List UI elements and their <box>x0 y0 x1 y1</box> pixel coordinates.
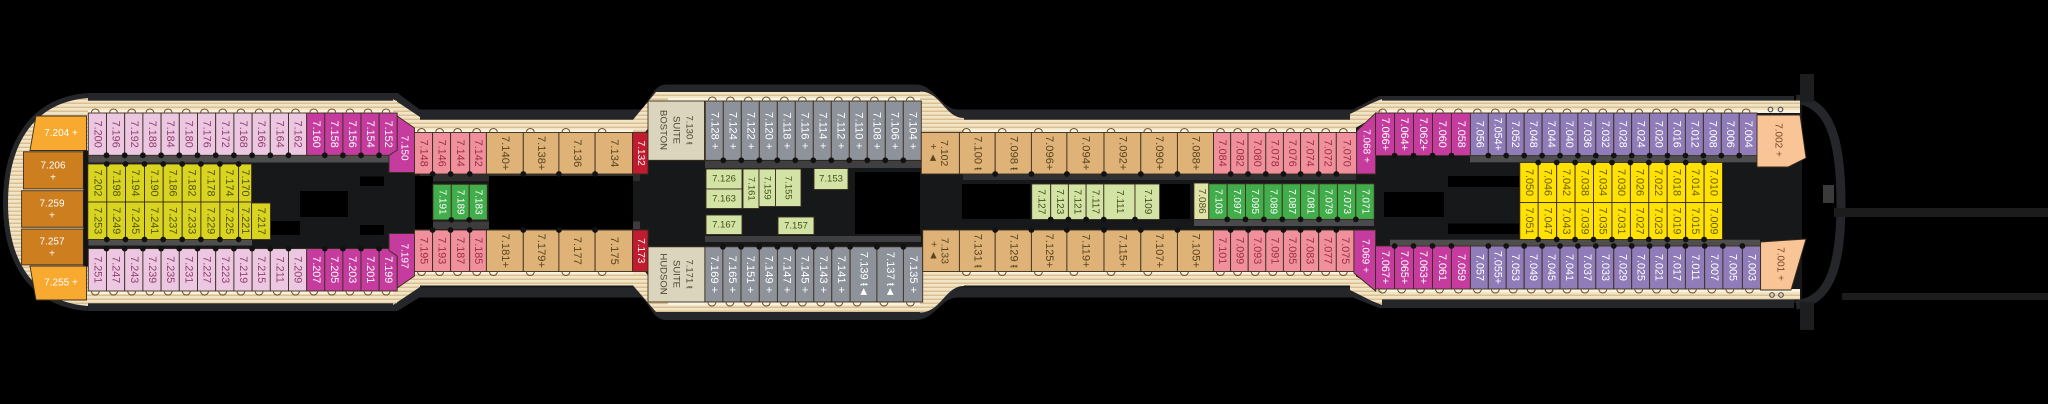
svg-text:7.008: 7.008 <box>1706 121 1718 148</box>
svg-text:7.247: 7.247 <box>110 256 122 283</box>
svg-text:7.028: 7.028 <box>1617 121 1629 148</box>
svg-text:7.026: 7.026 <box>1634 169 1646 196</box>
svg-text:7.190: 7.190 <box>148 169 160 196</box>
svg-text:7.249: 7.249 <box>110 207 122 234</box>
svg-text:7.012: 7.012 <box>1688 121 1700 148</box>
svg-text:7.223: 7.223 <box>219 256 231 283</box>
svg-text:+: + <box>49 211 55 222</box>
svg-text:7.139 ŧ◄: 7.139 ŧ◄ <box>858 252 870 297</box>
svg-text:7.020: 7.020 <box>1653 121 1665 148</box>
svg-text:+: + <box>50 173 56 184</box>
svg-text:7.121: 7.121 <box>1072 189 1083 214</box>
svg-text:7.185: 7.185 <box>472 237 484 264</box>
svg-text:7.158: 7.158 <box>328 121 340 148</box>
svg-text:7.155: 7.155 <box>783 176 794 200</box>
svg-text:7.023: 7.023 <box>1652 207 1664 234</box>
svg-text:+ ◄: + ◄ <box>928 241 940 260</box>
svg-text:7.241: 7.241 <box>148 207 160 234</box>
svg-text:7.024: 7.024 <box>1635 121 1647 148</box>
svg-text:7.229: 7.229 <box>204 207 216 234</box>
svg-text:7.092+: 7.092+ <box>1116 136 1128 171</box>
svg-text:7.169 +: 7.169 + <box>708 256 720 294</box>
svg-text:7.042: 7.042 <box>1560 169 1572 196</box>
svg-text:7.002 +: 7.002 + <box>1773 123 1784 157</box>
svg-text:7.173: 7.173 <box>635 238 646 263</box>
svg-text:7.137 ŧ◄: 7.137 ŧ◄ <box>884 252 896 297</box>
svg-text:7.125+: 7.125+ <box>1043 234 1055 269</box>
svg-text:7.053: 7.053 <box>1509 254 1521 281</box>
svg-text:7.215: 7.215 <box>255 256 267 283</box>
svg-text:7.253: 7.253 <box>91 207 103 234</box>
svg-text:7.145 +: 7.145 + <box>799 256 811 294</box>
svg-text:7.227: 7.227 <box>201 256 213 283</box>
svg-text:7.069 +: 7.069 + <box>1360 239 1371 273</box>
svg-text:7.170: 7.170 <box>239 169 251 196</box>
svg-text:7.061: 7.061 <box>1436 254 1448 281</box>
svg-text:7.189: 7.189 <box>455 190 466 215</box>
svg-text:7.200: 7.200 <box>91 121 103 148</box>
svg-text:7.015: 7.015 <box>1689 207 1701 234</box>
svg-text:+: + <box>49 249 55 260</box>
svg-text:7.219: 7.219 <box>237 256 249 283</box>
svg-text:7.167: 7.167 <box>712 219 736 230</box>
svg-text:7.152: 7.152 <box>382 121 394 148</box>
svg-text:7.044: 7.044 <box>1545 121 1557 148</box>
svg-text:7.103: 7.103 <box>1213 189 1224 214</box>
svg-text:7.057: 7.057 <box>1473 254 1485 281</box>
svg-text:7.035: 7.035 <box>1597 207 1609 234</box>
svg-text:7.124 +: 7.124 + <box>726 112 738 150</box>
svg-text:7.204 +: 7.204 + <box>44 128 78 139</box>
svg-text:7.174: 7.174 <box>223 169 235 196</box>
svg-text:7.129 ŧ: 7.129 ŧ <box>1007 234 1019 269</box>
svg-text:7.151 +: 7.151 + <box>744 256 756 294</box>
svg-text:7.077: 7.077 <box>1322 237 1334 264</box>
svg-text:7.108 +: 7.108 + <box>870 112 882 150</box>
svg-text:7.072: 7.072 <box>1322 140 1334 167</box>
svg-text:7.112 +: 7.112 + <box>834 112 846 149</box>
svg-text:7.021: 7.021 <box>1653 254 1665 281</box>
svg-text:7.010: 7.010 <box>1707 169 1719 196</box>
svg-text:7.043: 7.043 <box>1560 207 1572 234</box>
svg-text:7.202: 7.202 <box>91 169 103 196</box>
svg-text:7.177: 7.177 <box>571 237 583 265</box>
svg-text:BOSTON: BOSTON <box>658 110 669 150</box>
svg-text:7.107+: 7.107+ <box>1153 234 1165 269</box>
svg-text:7.078: 7.078 <box>1269 140 1281 167</box>
svg-text:7.176: 7.176 <box>201 121 213 148</box>
svg-text:7.036: 7.036 <box>1581 121 1593 148</box>
svg-text:7.001 +: 7.001 + <box>1775 247 1786 281</box>
svg-text:7.154: 7.154 <box>364 121 376 148</box>
svg-text:7.180: 7.180 <box>182 121 194 148</box>
svg-text:7.006: 7.006 <box>1724 121 1736 148</box>
svg-text:7.089: 7.089 <box>1268 189 1279 214</box>
svg-text:7.157: 7.157 <box>784 220 808 231</box>
svg-text:7.178: 7.178 <box>204 169 216 196</box>
svg-text:7.019: 7.019 <box>1671 207 1683 234</box>
svg-text:7.011: 7.011 <box>1689 254 1701 280</box>
svg-text:7.060: 7.060 <box>1436 121 1448 148</box>
svg-text:7.063+: 7.063+ <box>1417 251 1429 284</box>
svg-text:7.141 +: 7.141 + <box>835 256 847 294</box>
svg-text:7.191: 7.191 <box>437 190 448 215</box>
svg-text:7.086: 7.086 <box>1196 189 1207 214</box>
svg-text:7.239: 7.239 <box>146 256 158 283</box>
svg-text:7.235: 7.235 <box>164 256 176 283</box>
svg-text:7.186: 7.186 <box>167 169 179 196</box>
svg-text:7.066+: 7.066+ <box>1379 118 1391 151</box>
svg-text:7.136: 7.136 <box>571 139 583 167</box>
svg-text:7.094+: 7.094+ <box>1080 136 1092 171</box>
svg-text:7.183: 7.183 <box>473 190 484 215</box>
svg-text:7.159: 7.159 <box>762 176 773 200</box>
svg-text:7.156: 7.156 <box>346 121 358 148</box>
svg-text:7.119+: 7.119+ <box>1080 234 1092 268</box>
svg-text:7.091: 7.091 <box>1269 237 1281 264</box>
svg-text:7.255 +: 7.255 + <box>44 278 78 289</box>
svg-text:7.014: 7.014 <box>1689 169 1701 196</box>
svg-text:7.135 +: 7.135 + <box>907 256 919 294</box>
svg-text:7.090+: 7.090+ <box>1153 136 1165 171</box>
svg-text:HUDSON: HUDSON <box>658 253 669 294</box>
svg-text:7.243: 7.243 <box>128 256 140 283</box>
svg-text:+ ◄: + ◄ <box>927 143 939 162</box>
svg-text:7.009: 7.009 <box>1707 207 1719 234</box>
svg-text:7.128 +: 7.128 + <box>708 112 720 150</box>
svg-text:7.164: 7.164 <box>273 121 285 148</box>
svg-text:7.192: 7.192 <box>128 121 140 148</box>
svg-text:7.005: 7.005 <box>1727 254 1739 281</box>
svg-text:7.166: 7.166 <box>255 121 267 148</box>
svg-text:SUITE: SUITE <box>671 260 682 288</box>
svg-text:7.085: 7.085 <box>1286 237 1298 264</box>
svg-text:7.120 +: 7.120 + <box>762 112 774 150</box>
svg-text:7.030: 7.030 <box>1615 169 1627 196</box>
svg-text:7.182: 7.182 <box>186 169 198 196</box>
svg-text:7.073: 7.073 <box>1341 189 1352 214</box>
svg-text:7.041: 7.041 <box>1563 254 1575 281</box>
svg-text:7.209: 7.209 <box>292 256 304 283</box>
svg-text:7.100 ŧ: 7.100 ŧ <box>971 136 983 171</box>
svg-text:7.122 +: 7.122 + <box>744 112 756 150</box>
svg-text:7.038: 7.038 <box>1578 169 1590 196</box>
svg-text:7.106 +: 7.106 + <box>888 112 900 150</box>
svg-text:7.123: 7.123 <box>1054 189 1065 214</box>
svg-text:7.022: 7.022 <box>1652 169 1664 196</box>
svg-text:7.104 +: 7.104 + <box>906 112 918 150</box>
svg-text:7.233: 7.233 <box>186 207 198 234</box>
svg-text:7.161: 7.161 <box>746 177 757 201</box>
svg-text:7.116 +: 7.116 + <box>798 112 810 149</box>
svg-text:7.149 +: 7.149 + <box>762 256 774 294</box>
svg-text:7.205: 7.205 <box>328 256 340 283</box>
svg-text:7.165 +: 7.165 + <box>726 256 738 294</box>
svg-text:7.146: 7.146 <box>436 140 448 167</box>
svg-text:7.143 +: 7.143 + <box>817 256 829 294</box>
svg-text:7.127: 7.127 <box>1036 189 1047 214</box>
svg-text:7.144: 7.144 <box>454 140 466 167</box>
svg-text:7.055+: 7.055+ <box>1491 251 1503 284</box>
svg-text:7.059: 7.059 <box>1455 254 1467 281</box>
svg-text:7.150: 7.150 <box>399 135 410 160</box>
svg-text:7.115+: 7.115+ <box>1116 234 1128 268</box>
svg-text:7.147 +: 7.147 + <box>780 256 792 294</box>
svg-text:7.194: 7.194 <box>129 169 141 196</box>
svg-text:7.105+: 7.105+ <box>1189 234 1201 269</box>
svg-text:7.162: 7.162 <box>292 121 304 148</box>
svg-text:7.045: 7.045 <box>1545 254 1557 281</box>
svg-text:7.074: 7.074 <box>1304 140 1316 167</box>
svg-text:7.058: 7.058 <box>1455 121 1467 148</box>
svg-text:7.080: 7.080 <box>1251 140 1263 167</box>
svg-text:7.206: 7.206 <box>40 161 65 172</box>
svg-text:7.231: 7.231 <box>182 256 194 283</box>
svg-text:7.025: 7.025 <box>1635 254 1647 281</box>
svg-text:7.172: 7.172 <box>219 121 231 148</box>
svg-text:7.070: 7.070 <box>1341 140 1353 167</box>
svg-text:7.196: 7.196 <box>110 121 122 148</box>
svg-text:7.201: 7.201 <box>364 256 376 283</box>
svg-text:7.097: 7.097 <box>1231 189 1242 214</box>
svg-text:7.018: 7.018 <box>1671 169 1683 196</box>
svg-text:7.187: 7.187 <box>454 237 466 264</box>
svg-text:7.052: 7.052 <box>1509 121 1521 148</box>
svg-text:7.093: 7.093 <box>1251 237 1263 264</box>
svg-text:7.126: 7.126 <box>712 174 736 185</box>
svg-text:7.251: 7.251 <box>91 256 103 283</box>
svg-text:7.098 ŧ: 7.098 ŧ <box>1007 136 1019 171</box>
svg-text:7.188: 7.188 <box>146 121 158 148</box>
svg-text:7.004: 7.004 <box>1742 121 1754 148</box>
svg-text:7.211: 7.211 <box>273 257 285 283</box>
svg-text:7.118 +: 7.118 + <box>780 112 792 149</box>
svg-text:7.032: 7.032 <box>1599 121 1611 148</box>
svg-text:7.148: 7.148 <box>418 140 430 167</box>
svg-text:SUITE: SUITE <box>671 116 682 144</box>
svg-text:7.095: 7.095 <box>1249 189 1260 214</box>
svg-text:7.195: 7.195 <box>418 237 430 264</box>
svg-text:7.064+: 7.064+ <box>1398 118 1410 151</box>
svg-text:7.179+: 7.179+ <box>535 234 547 269</box>
svg-text:7.076: 7.076 <box>1286 140 1298 167</box>
svg-text:7.099: 7.099 <box>1233 237 1245 264</box>
svg-text:7.134: 7.134 <box>608 139 620 167</box>
svg-text:7.197: 7.197 <box>399 243 410 268</box>
svg-text:7.051: 7.051 <box>1523 207 1535 234</box>
svg-text:7.048: 7.048 <box>1527 121 1539 148</box>
svg-text:7.171 ŧ: 7.171 ŧ <box>684 259 695 288</box>
svg-text:7.168: 7.168 <box>237 121 249 148</box>
svg-text:7.033: 7.033 <box>1599 254 1611 281</box>
svg-text:7.003: 7.003 <box>1746 254 1758 281</box>
svg-text:7.067+: 7.067+ <box>1379 251 1391 284</box>
svg-text:7.101: 7.101 <box>1216 237 1228 264</box>
svg-text:7.029: 7.029 <box>1617 254 1629 281</box>
svg-text:7.056: 7.056 <box>1473 121 1485 148</box>
svg-text:7.163: 7.163 <box>712 193 736 204</box>
svg-text:7.065+: 7.065+ <box>1398 251 1410 284</box>
svg-text:7.096+: 7.096+ <box>1043 136 1055 171</box>
svg-text:7.175: 7.175 <box>608 237 620 265</box>
svg-text:7.050: 7.050 <box>1523 169 1535 196</box>
svg-text:7.081: 7.081 <box>1304 189 1315 214</box>
svg-text:7.088+: 7.088+ <box>1190 136 1202 171</box>
svg-text:7.084: 7.084 <box>1216 140 1228 167</box>
svg-text:7.054+: 7.054+ <box>1491 118 1503 151</box>
svg-text:7.082: 7.082 <box>1233 140 1245 167</box>
svg-text:7.184: 7.184 <box>164 121 176 148</box>
svg-text:7.203: 7.203 <box>346 256 358 283</box>
svg-text:7.110 +: 7.110 + <box>852 112 864 149</box>
svg-text:7.142: 7.142 <box>472 140 484 167</box>
svg-text:7.027: 7.027 <box>1634 207 1646 234</box>
svg-text:7.068 +: 7.068 + <box>1361 129 1372 163</box>
svg-text:7.198: 7.198 <box>110 169 122 196</box>
svg-text:7.257: 7.257 <box>39 237 64 248</box>
svg-text:7.131 ŧ: 7.131 ŧ <box>971 234 983 269</box>
svg-text:7.130 ŧ: 7.130 ŧ <box>684 115 695 144</box>
svg-text:7.071: 7.071 <box>1359 189 1370 214</box>
svg-text:7.160: 7.160 <box>310 121 322 148</box>
svg-text:7.132: 7.132 <box>635 141 646 166</box>
svg-text:7.259: 7.259 <box>39 199 64 210</box>
svg-text:7.245: 7.245 <box>129 207 141 234</box>
svg-text:7.109: 7.109 <box>1142 189 1153 214</box>
svg-text:7.221: 7.221 <box>239 207 251 234</box>
svg-text:7.140+: 7.140+ <box>499 136 511 171</box>
svg-text:7.138+: 7.138+ <box>535 136 547 171</box>
svg-text:7.031: 7.031 <box>1615 207 1627 234</box>
svg-text:7.047: 7.047 <box>1541 207 1553 234</box>
svg-text:7.181+: 7.181+ <box>499 234 511 269</box>
svg-text:7.225: 7.225 <box>223 207 235 234</box>
svg-text:7.114 +: 7.114 + <box>816 112 828 149</box>
svg-text:7.087: 7.087 <box>1286 189 1297 214</box>
svg-text:7.016: 7.016 <box>1671 121 1683 148</box>
svg-text:7.049: 7.049 <box>1527 254 1539 281</box>
svg-text:7.075: 7.075 <box>1339 237 1351 264</box>
svg-text:7.153: 7.153 <box>819 174 843 185</box>
svg-text:7.237: 7.237 <box>167 207 179 234</box>
svg-text:7.017: 7.017 <box>1671 254 1683 281</box>
svg-text:7.083: 7.083 <box>1304 237 1316 264</box>
svg-text:7.039: 7.039 <box>1578 207 1590 234</box>
svg-text:7.199: 7.199 <box>382 256 394 283</box>
svg-text:7.037: 7.037 <box>1581 254 1593 281</box>
svg-text:7.079: 7.079 <box>1323 189 1334 214</box>
svg-text:7.207: 7.207 <box>310 256 322 283</box>
svg-text:7.034: 7.034 <box>1597 169 1609 196</box>
svg-text:7.062+: 7.062+ <box>1417 118 1429 151</box>
svg-text:7.111: 7.111 <box>1114 190 1125 214</box>
svg-text:7.040: 7.040 <box>1563 121 1575 148</box>
svg-text:7.117: 7.117 <box>1089 190 1100 215</box>
svg-text:7.007: 7.007 <box>1708 254 1720 281</box>
svg-text:7.193: 7.193 <box>436 237 448 264</box>
svg-text:7.217: 7.217 <box>255 208 267 235</box>
svg-text:7.046: 7.046 <box>1541 169 1553 196</box>
